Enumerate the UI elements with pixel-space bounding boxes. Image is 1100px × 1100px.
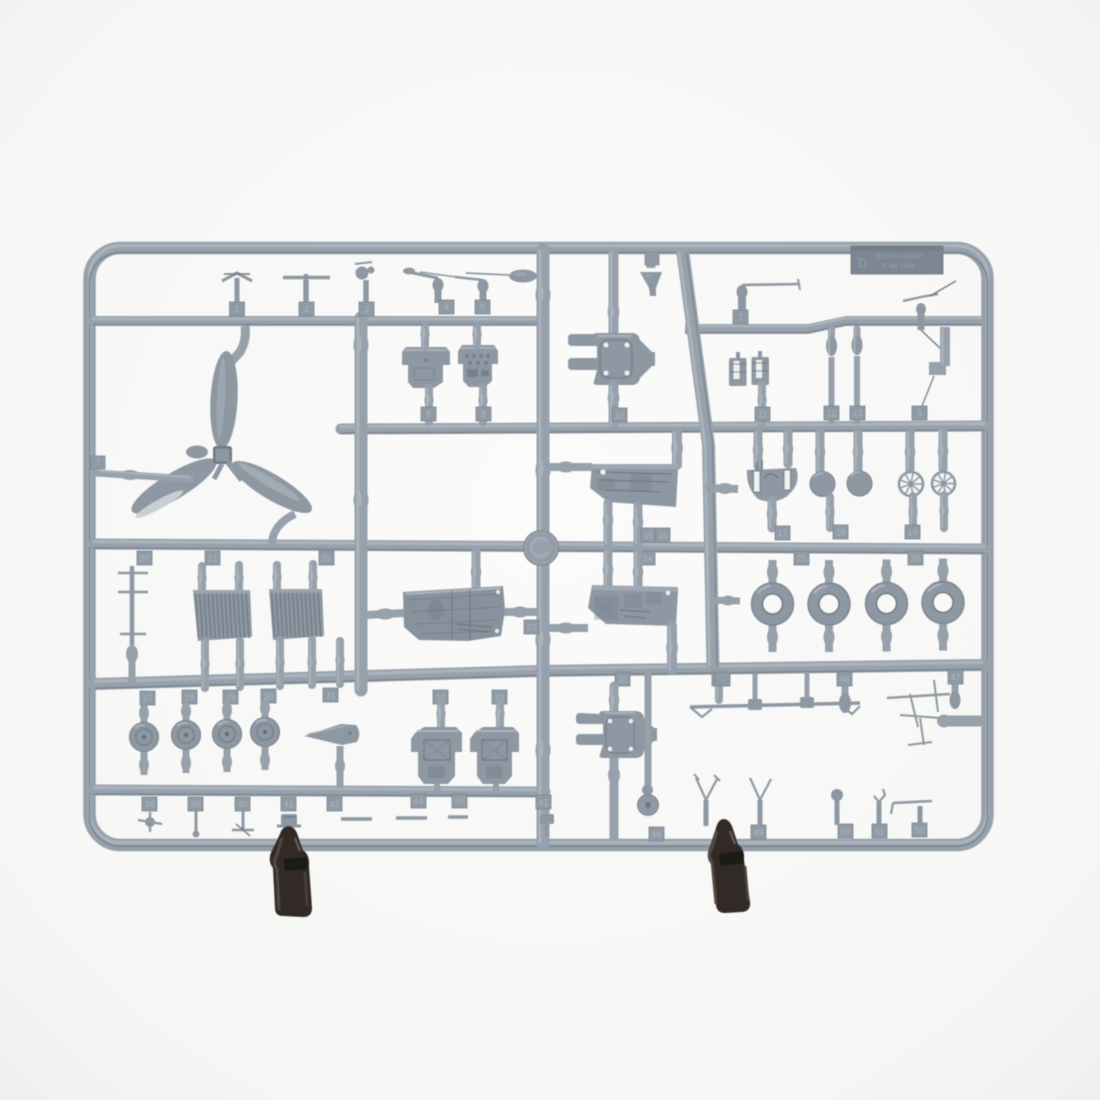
svg-text:41: 41: [283, 800, 293, 810]
svg-text:41: 41: [538, 798, 548, 808]
svg-text:22: 22: [321, 554, 331, 564]
svg-text:9: 9: [917, 409, 922, 419]
svg-text:16: 16: [657, 531, 667, 541]
svg-text:45: 45: [454, 797, 464, 807]
svg-text:51: 51: [874, 827, 884, 837]
svg-text:1: 1: [234, 305, 239, 315]
svg-text:15: 15: [643, 531, 653, 541]
svg-text:44: 44: [413, 797, 423, 807]
svg-text:39: 39: [190, 800, 200, 810]
svg-text:8: 8: [426, 410, 431, 420]
svg-text:P-40 1/48: P-40 1/48: [882, 262, 915, 271]
svg-text:7: 7: [738, 313, 743, 323]
svg-text:8: 8: [481, 410, 486, 420]
svg-text:23: 23: [526, 623, 536, 633]
svg-text:19: 19: [907, 528, 917, 538]
svg-text:82240 eduard: 82240 eduard: [875, 252, 921, 261]
svg-text:42: 42: [329, 800, 339, 810]
svg-text:11: 11: [758, 410, 767, 420]
svg-text:7: 7: [95, 458, 100, 468]
svg-text:29: 29: [225, 693, 235, 703]
svg-text:25: 25: [796, 554, 806, 564]
svg-text:27: 27: [142, 694, 152, 704]
svg-text:13: 13: [852, 409, 862, 419]
svg-text:46: 46: [839, 675, 849, 685]
svg-text:40: 40: [237, 800, 247, 810]
svg-text:21: 21: [207, 554, 217, 564]
svg-text:36: 36: [617, 675, 627, 685]
svg-text:3: 3: [364, 305, 369, 315]
svg-text:28: 28: [184, 693, 194, 703]
svg-text:48: 48: [651, 830, 661, 840]
svg-text:5: 5: [480, 303, 485, 313]
svg-text:26: 26: [910, 554, 920, 564]
svg-text:50: 50: [840, 827, 850, 837]
svg-text:52: 52: [914, 826, 924, 836]
svg-text:47: 47: [950, 673, 960, 683]
svg-text:12: 12: [826, 409, 836, 419]
svg-text:2: 2: [304, 305, 309, 315]
svg-text:24: 24: [642, 554, 652, 564]
svg-text:49: 49: [753, 828, 763, 838]
svg-text:20: 20: [139, 554, 149, 564]
svg-text:10: 10: [614, 411, 624, 421]
svg-text:38: 38: [144, 800, 154, 810]
svg-text:18: 18: [835, 528, 845, 538]
svg-text:D: D: [858, 256, 867, 270]
svg-text:4: 4: [444, 303, 449, 313]
svg-text:31: 31: [325, 691, 335, 701]
svg-text:17: 17: [777, 529, 787, 539]
